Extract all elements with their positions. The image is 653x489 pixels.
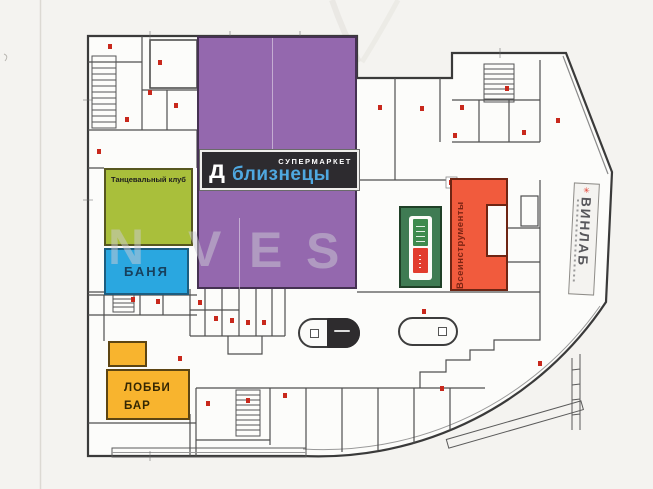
bliznetsy-logo-icon: д — [202, 155, 232, 185]
zone-tools-store: Всеинструменты — [450, 178, 508, 291]
supermarket-inner-wall — [239, 218, 240, 289]
winlab-logo-icon: ✳ — [583, 186, 590, 196]
watermark-letter: V — [188, 220, 221, 278]
watermark-letter: E — [249, 221, 282, 279]
watermark-letter: S — [306, 222, 339, 280]
zone-green-store — [399, 206, 442, 288]
kiosk-booth-label-illegible — [334, 330, 350, 332]
lobby-bar-label-line1: ЛОББИ — [124, 380, 188, 398]
supermarket-sign: д СУПЕРМАРКЕТ близнецы — [200, 150, 359, 190]
floorplan-page: д СУПЕРМАРКЕТ близнецы Танцевальный клуб… — [0, 0, 653, 489]
island-kiosk-right — [398, 317, 458, 346]
kiosk-counter — [310, 329, 319, 338]
zone-lobby-bar: ЛОББИ БАР — [106, 369, 190, 420]
fold-crease — [362, 0, 398, 62]
supermarket-inner-wall — [272, 38, 273, 150]
zone-lobby-bar-room — [108, 341, 147, 367]
dance-club-label: Танцевальный клуб — [111, 175, 186, 184]
kiosk-counter — [438, 327, 447, 336]
lobby-bar-label-line2: БАР — [124, 398, 188, 416]
banner-green-panel — [413, 219, 428, 246]
supermarket-sign-text: СУПЕРМАРКЕТ близнецы — [232, 157, 357, 184]
island-kiosk-left — [298, 318, 360, 348]
green-store-banner — [409, 216, 432, 280]
kiosk-dark-booth — [327, 318, 360, 348]
tools-store-notch — [486, 204, 508, 257]
supermarket-brand-label: близнецы — [232, 165, 352, 184]
tools-store-label: Всеинструменты — [455, 180, 466, 289]
watermark-letter: N — [108, 218, 144, 276]
banner-red-panel — [413, 248, 428, 273]
